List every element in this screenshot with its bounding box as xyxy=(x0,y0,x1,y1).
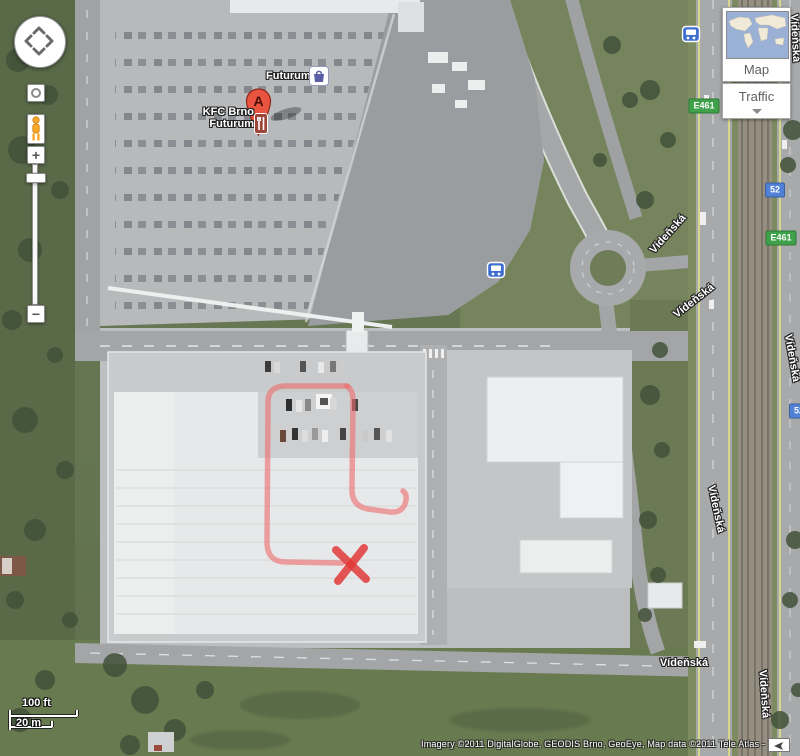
zoom-out-button[interactable]: − xyxy=(27,305,45,323)
marker-shadow xyxy=(268,107,304,121)
restaurant-icon[interactable] xyxy=(254,113,268,134)
arrow-icon xyxy=(769,740,789,752)
attribution-text: Imagery ©2011 DigitalGlobe, GEODIS Brno,… xyxy=(421,739,767,749)
annotation-path-left xyxy=(267,386,347,563)
kfc-poi-label[interactable]: KFC Brno Futurum xyxy=(162,106,254,130)
shopping-bag-icon[interactable] xyxy=(309,66,329,86)
overview-world-map[interactable] xyxy=(726,11,789,59)
bus-stop-icon[interactable] xyxy=(487,262,506,279)
pegman-icon xyxy=(28,115,44,143)
route-shield-e461: E461 xyxy=(765,231,796,246)
report-problem-button[interactable] xyxy=(768,738,790,752)
map-type-widget[interactable]: Map xyxy=(722,7,791,82)
street-label-videnska: Vídeňská xyxy=(660,657,708,669)
bus-stop-icon[interactable] xyxy=(682,26,701,43)
route-shield-52: 52 xyxy=(765,183,785,198)
svg-text:A: A xyxy=(253,93,263,109)
pan-down-arrow xyxy=(34,49,44,54)
map-canvas[interactable]: A KFC Brno Futurum Futurum E461 52 E461 … xyxy=(0,0,800,756)
pan-up-arrow xyxy=(34,28,44,33)
pan-right-arrow xyxy=(47,36,52,46)
scale-bar: 100 ft 20 m xyxy=(8,697,88,729)
street-view-pegman[interactable] xyxy=(27,114,45,144)
route-shield-e461: E461 xyxy=(688,99,719,114)
caret-down-icon xyxy=(752,109,762,114)
annotation-path-right xyxy=(347,386,406,512)
map-button[interactable]: Map xyxy=(726,59,787,79)
traffic-button[interactable]: Traffic xyxy=(722,83,791,119)
reset-view-button[interactable] xyxy=(27,84,45,102)
route-shield-52: 52 xyxy=(789,404,800,419)
zoom-in-button[interactable]: + xyxy=(27,146,45,164)
futurum-poi-label[interactable]: Futurum xyxy=(266,70,311,82)
zoom-slider-track[interactable] xyxy=(32,164,38,305)
route-annotation xyxy=(0,0,800,756)
pan-control[interactable] xyxy=(14,16,66,68)
zoom-slider-handle[interactable] xyxy=(26,173,46,183)
target-icon xyxy=(28,85,44,101)
pan-left-arrow xyxy=(26,36,31,46)
